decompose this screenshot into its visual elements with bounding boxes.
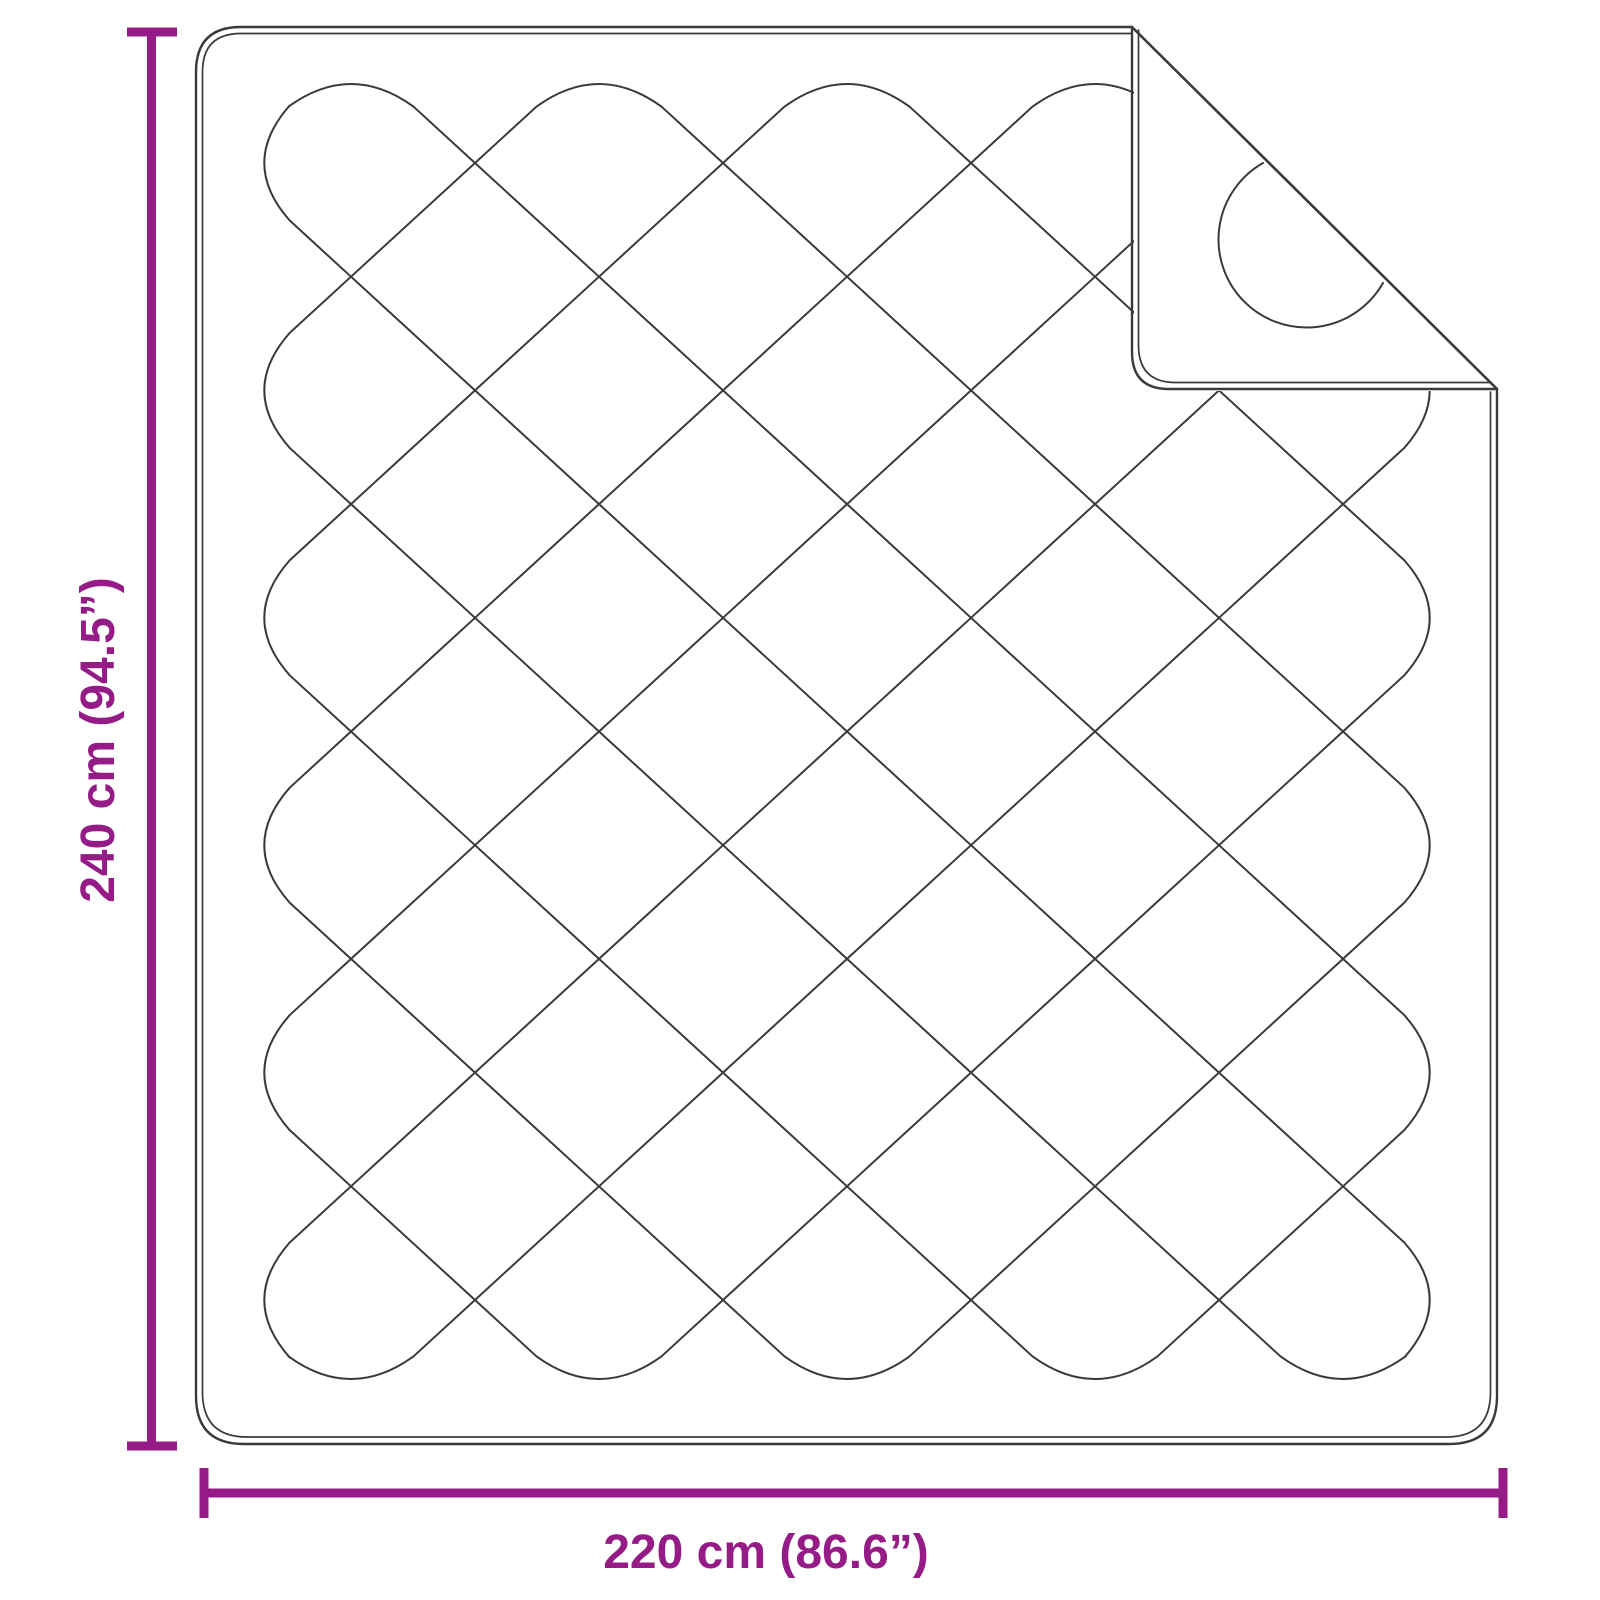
blanket-dimension-diagram: 240 cm (94.5”) 220 cm (86.6”) [0,0,1600,1600]
fold-crease-line [1132,27,1497,389]
dimension-labels: 240 cm (94.5”) 220 cm (86.6”) [72,577,929,1579]
dimension-diagram-page: 240 cm (94.5”) 220 cm (86.6”) [0,0,1600,1600]
blanket-drawing [196,27,1497,1444]
quilting-stitch-lines [264,84,1429,1379]
height-dimension-label: 240 cm (94.5”) [72,577,125,903]
flap-quilting-loop [1219,163,1383,327]
quilting-pattern [264,84,1429,1379]
width-dimension-label: 220 cm (86.6”) [603,1526,929,1579]
